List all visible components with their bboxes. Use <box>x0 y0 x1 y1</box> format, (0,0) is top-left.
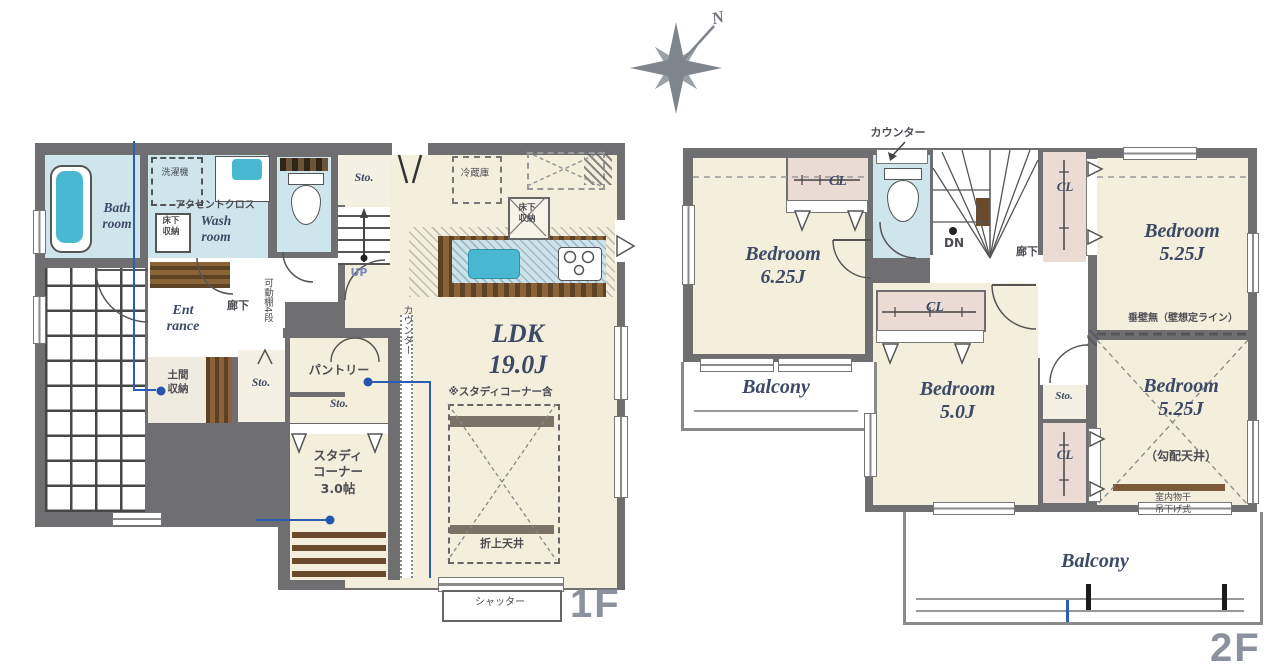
balcony-post <box>1086 584 1091 610</box>
window <box>933 502 1015 515</box>
entrance-porch-tiles <box>45 268 145 512</box>
label-bedroom-50: Bedroom 5.0J <box>900 378 1015 434</box>
window <box>33 210 46 254</box>
label-no-hanging-wall: 垂壁無（壁想定ライン） <box>1112 312 1254 326</box>
label-movable-shelf: 可動棚4段 <box>257 278 272 354</box>
window <box>614 326 628 400</box>
label-balcony-left: Balcony <box>726 376 826 404</box>
drying-pole <box>1113 484 1225 491</box>
toilet-counter-2f <box>876 149 928 164</box>
label-coffered-ceiling: 折上天井 <box>463 537 541 552</box>
label-bedroom-525-top: Bedroom 5.25J <box>1123 220 1241 276</box>
label-counter-2f: カウンター <box>852 126 944 141</box>
toilet-tank-2f <box>884 168 922 180</box>
label-underfloor-kitchen: 床下 収納 <box>512 203 542 231</box>
floor-plan-canvas: N <box>0 0 1280 669</box>
label-closet-625: CL <box>818 174 858 194</box>
label-closet-hall-2f: CL <box>1048 180 1082 200</box>
balcony-mark-blue <box>1066 600 1069 622</box>
door-gap-right-1f <box>615 220 627 262</box>
label-fridge: 冷蔵庫 <box>455 168 495 182</box>
label-underfloor-wash: 床下 収納 <box>156 216 186 246</box>
label-bedroom-625: Bedroom 6.25J <box>723 243 843 299</box>
closet-shelf-50 <box>876 330 984 343</box>
label-ldk: LDK 19.0J <box>468 318 568 384</box>
label-up: UP <box>346 266 372 280</box>
label-sloped-ceiling: （勾配天井） <box>1121 449 1241 466</box>
window <box>864 413 877 477</box>
top-door-gap-1f <box>392 143 428 155</box>
compass-north-label: N <box>704 5 732 30</box>
kitchen-sink <box>468 249 520 279</box>
floor-label-2f: 2F <box>1210 626 1280 669</box>
label-pantry: パントリー <box>294 363 384 380</box>
label-corridor-2f: 廊下 <box>1006 245 1048 261</box>
label-closet-50: CL <box>915 300 955 320</box>
label-ldk-note: ※スタディコーナー含 <box>428 386 573 400</box>
balcony-left-rail <box>694 410 858 412</box>
entrance-step <box>150 262 230 288</box>
ceiling-rail-bottom <box>450 525 554 534</box>
label-closet-525b: CL <box>1048 448 1082 468</box>
doma-shelf <box>206 357 232 423</box>
wall-pantry-top <box>283 328 400 338</box>
label-entrance: Ent rance <box>152 303 214 345</box>
label-washroom: Wash room <box>190 213 242 257</box>
label-indoor-drying: 室内物干 吊下げ式 <box>1128 493 1218 519</box>
stairs-newel <box>976 198 990 226</box>
label-balcony-bottom: Balcony <box>1040 550 1150 580</box>
window <box>1123 147 1197 160</box>
label-doma-storage: 土間 収納 <box>154 369 202 403</box>
label-laundry: 洗濯機 <box>152 168 198 182</box>
label-storage-2f: Sto. <box>1046 390 1082 405</box>
vestibule-2f <box>1040 345 1088 385</box>
closet-525b-door <box>1088 428 1101 502</box>
window <box>33 296 46 344</box>
corner-hatch-1f <box>584 154 612 185</box>
label-study-corner: スタディ コーナー 3.0帖 <box>296 448 380 506</box>
wash-basin <box>232 159 262 180</box>
toilet-shelf-1f <box>280 158 328 171</box>
label-bathroom: Bath room <box>86 200 148 244</box>
balcony-post <box>1222 584 1227 610</box>
label-storage-study: Sto. <box>318 398 360 415</box>
stairs-1f <box>338 207 390 265</box>
closet-shelf-625 <box>786 200 868 213</box>
label-bedroom-525-bottom: Bedroom 5.25J <box>1121 375 1241 431</box>
label-corridor-1f: 廊下 <box>220 299 256 314</box>
window <box>1247 233 1259 293</box>
study-wood-slats <box>292 527 386 577</box>
label-shutter: シャッター <box>450 596 550 610</box>
ceiling-rail-top <box>450 416 554 427</box>
balcony-bottom-rail <box>916 598 1244 612</box>
window <box>112 512 162 526</box>
window <box>1247 420 1259 504</box>
closet-hall-2f <box>1043 152 1086 262</box>
window <box>682 205 695 285</box>
window <box>778 358 852 372</box>
kitchen-stove <box>558 247 602 281</box>
floor-label-1f: 1F <box>570 582 642 626</box>
toilet-tank-1f <box>288 173 324 185</box>
label-storage-hall-1f: Sto. <box>344 171 384 187</box>
bathtub-water <box>56 171 83 243</box>
label-accent-cloth: アクセントクロス <box>163 199 267 212</box>
window <box>614 416 628 498</box>
label-dn: DN <box>936 236 972 252</box>
window <box>700 358 774 372</box>
label-storage-entrance: Sto. <box>243 377 279 393</box>
f1-footprint-cutout <box>30 527 278 607</box>
label-counter-1f: カウンター <box>397 305 411 385</box>
